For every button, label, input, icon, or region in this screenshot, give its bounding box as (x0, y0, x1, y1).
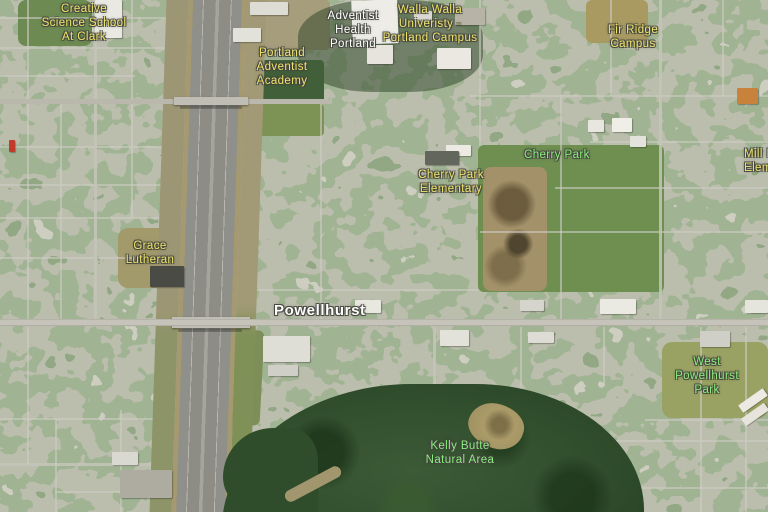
map-label-kelly-butte-natural-area: Kelly Butte Natural Area (418, 439, 502, 467)
map-label-portland-adventist-academy: Portland Adventist Academy (244, 46, 320, 88)
bridge-shadow-main (178, 329, 242, 332)
main-road-division (0, 319, 768, 326)
map-label-creative-science-school: Creative Science School At Clark (36, 2, 132, 44)
map-label-west-powellhurst-park: West Powellhurst Park (669, 355, 745, 397)
freeway-overpass-north (174, 97, 248, 105)
map-label-cherry-park: Cherry Park (524, 148, 590, 162)
map-label-powellhurst: Powellhurst (274, 304, 366, 318)
overpass-shadow (180, 106, 242, 109)
satellite-map-canvas[interactable]: Creative Science School At Clark Portlan… (0, 0, 768, 512)
map-label-mill-park-elementary: Mill Park Elementary (744, 147, 768, 175)
cross-street-overpass (0, 99, 332, 104)
map-label-walla-walla-university: Walla Walla Univeristy - Portland Campus (367, 3, 493, 45)
map-label-cherry-park-elementary: Cherry Park Elementary (412, 168, 490, 196)
church-building (150, 266, 184, 287)
map-label-grace-lutheran: Grace Lutheran (112, 239, 188, 267)
red-roof-building (9, 140, 15, 152)
orange-roof-building (737, 88, 758, 104)
map-label-fir-ridge-campus: Fir Ridge Campus (595, 23, 671, 51)
cherry-park-dirt-lot (483, 167, 547, 291)
